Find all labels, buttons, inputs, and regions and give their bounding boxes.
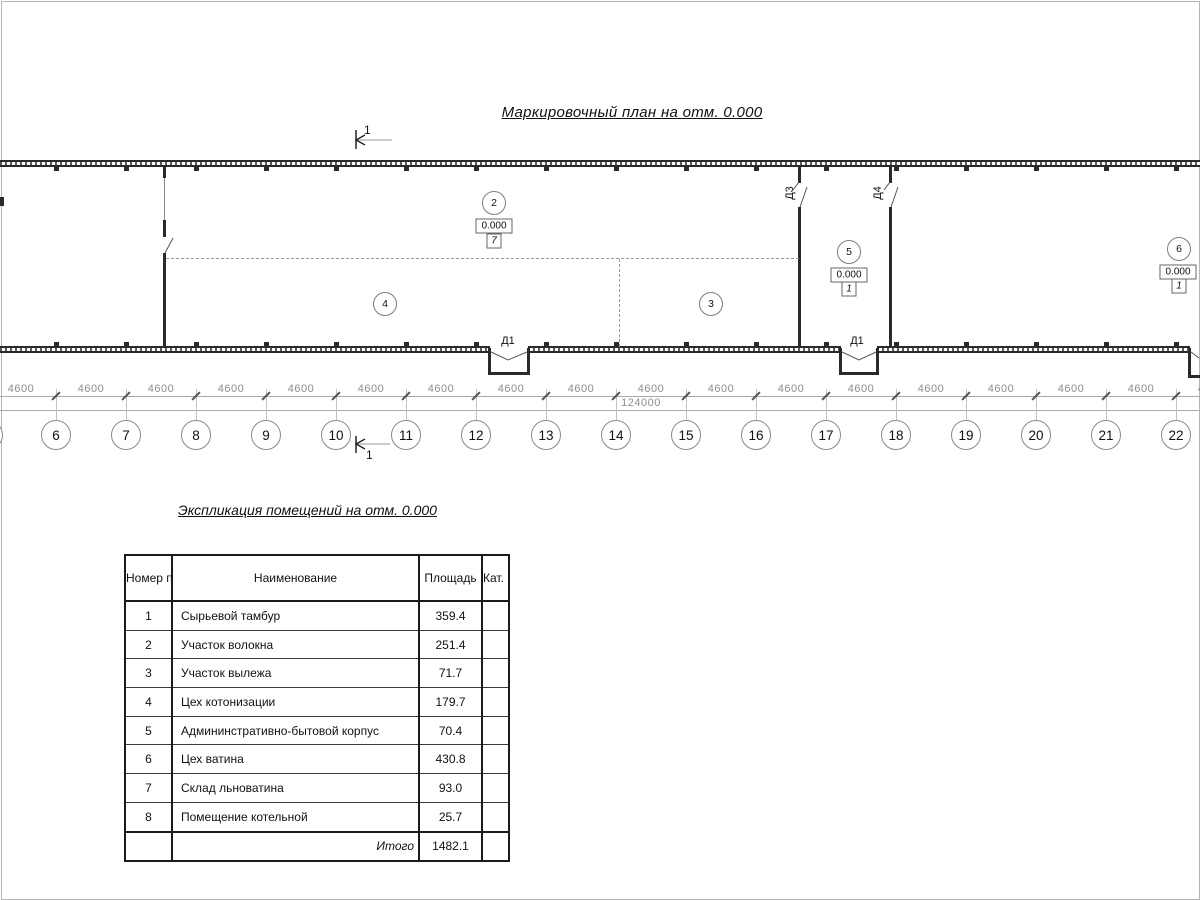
cell-room-number: 5: [125, 716, 172, 745]
door-swing: [891, 187, 898, 207]
cell-room-area: 179.7: [419, 688, 482, 717]
table-row: 3Участок вылежа71.7: [125, 659, 509, 688]
section-number: 1: [366, 448, 373, 462]
table-row: 1Сырьевой тамбур359.4: [125, 601, 509, 630]
door-swing: [165, 238, 173, 253]
entrance-leader: [842, 352, 876, 360]
table-row: 6Цех ватина430.8: [125, 745, 509, 774]
entrance-leader: [491, 352, 527, 360]
section-mark-top: 1: [356, 123, 392, 149]
cell-room-name: Склад льноватина: [172, 774, 419, 803]
cell-room-number: 7: [125, 774, 172, 803]
cell-empty: [482, 832, 509, 862]
drawing-sheet: Маркировочный план на отм. 0.000 Д1 Д1 Д…: [0, 0, 1200, 900]
cell-room-number: 8: [125, 802, 172, 831]
cell-empty: [125, 832, 172, 862]
cell-room-name: Участок волокна: [172, 630, 419, 659]
cell-room-area: 359.4: [419, 601, 482, 630]
cell-room-category: [482, 774, 509, 803]
cell-room-name: Цех ватина: [172, 745, 419, 774]
table-row: 7Склад льноватина93.0: [125, 774, 509, 803]
table-row: 4Цех котонизации179.7: [125, 688, 509, 717]
total-label: Итого: [172, 832, 419, 862]
cell-room-name: Помещение котельной: [172, 802, 419, 831]
header-room-number: Номер помещ.: [125, 555, 172, 601]
cell-room-category: [482, 745, 509, 774]
total-area-value: 1482.1: [419, 832, 482, 862]
table-row: 8Помещение котельной25.7: [125, 802, 509, 831]
cell-room-area: 25.7: [419, 802, 482, 831]
section-mark-bottom: 1: [356, 436, 390, 462]
cell-room-name: Участок вылежа: [172, 659, 419, 688]
cell-room-name: Сырьевой тамбур: [172, 601, 419, 630]
cell-room-area: 430.8: [419, 745, 482, 774]
header-name: Наименование: [172, 555, 419, 601]
cell-room-area: 70.4: [419, 716, 482, 745]
cell-room-area: 251.4: [419, 630, 482, 659]
table-row: 5Админинстративно-бытовой корпус70.4: [125, 716, 509, 745]
entrance-leader: [1191, 352, 1199, 358]
cell-room-number: 4: [125, 688, 172, 717]
cell-room-name: Цех котонизации: [172, 688, 419, 717]
cell-room-number: 3: [125, 659, 172, 688]
table-total-row: Итого1482.1: [125, 832, 509, 862]
cell-room-number: 6: [125, 745, 172, 774]
cell-room-category: [482, 802, 509, 831]
section-number: 1: [364, 123, 371, 137]
plan-linework: 1 1: [0, 0, 1200, 480]
door-swing: [800, 187, 807, 207]
cell-room-category: [482, 659, 509, 688]
cell-room-number: 2: [125, 630, 172, 659]
cell-room-area: 93.0: [419, 774, 482, 803]
table-header-row: Номер помещ. Наименование Площадь Кат. п…: [125, 555, 509, 601]
cell-room-category: [482, 688, 509, 717]
door-leader: [884, 182, 890, 190]
header-area: Площадь: [419, 555, 482, 601]
cell-room-area: 71.7: [419, 659, 482, 688]
rooms-table: Номер помещ. Наименование Площадь Кат. п…: [124, 554, 510, 862]
table-title: Экспликация помещений на отм. 0.000: [178, 502, 437, 518]
table-row: 2Участок волокна251.4: [125, 630, 509, 659]
cell-room-number: 1: [125, 601, 172, 630]
header-category: Кат. пом.: [482, 555, 509, 601]
cell-room-name: Админинстративно-бытовой корпус: [172, 716, 419, 745]
cell-room-category: [482, 630, 509, 659]
cell-room-category: [482, 601, 509, 630]
door-leader: [793, 182, 799, 190]
cell-room-category: [482, 716, 509, 745]
